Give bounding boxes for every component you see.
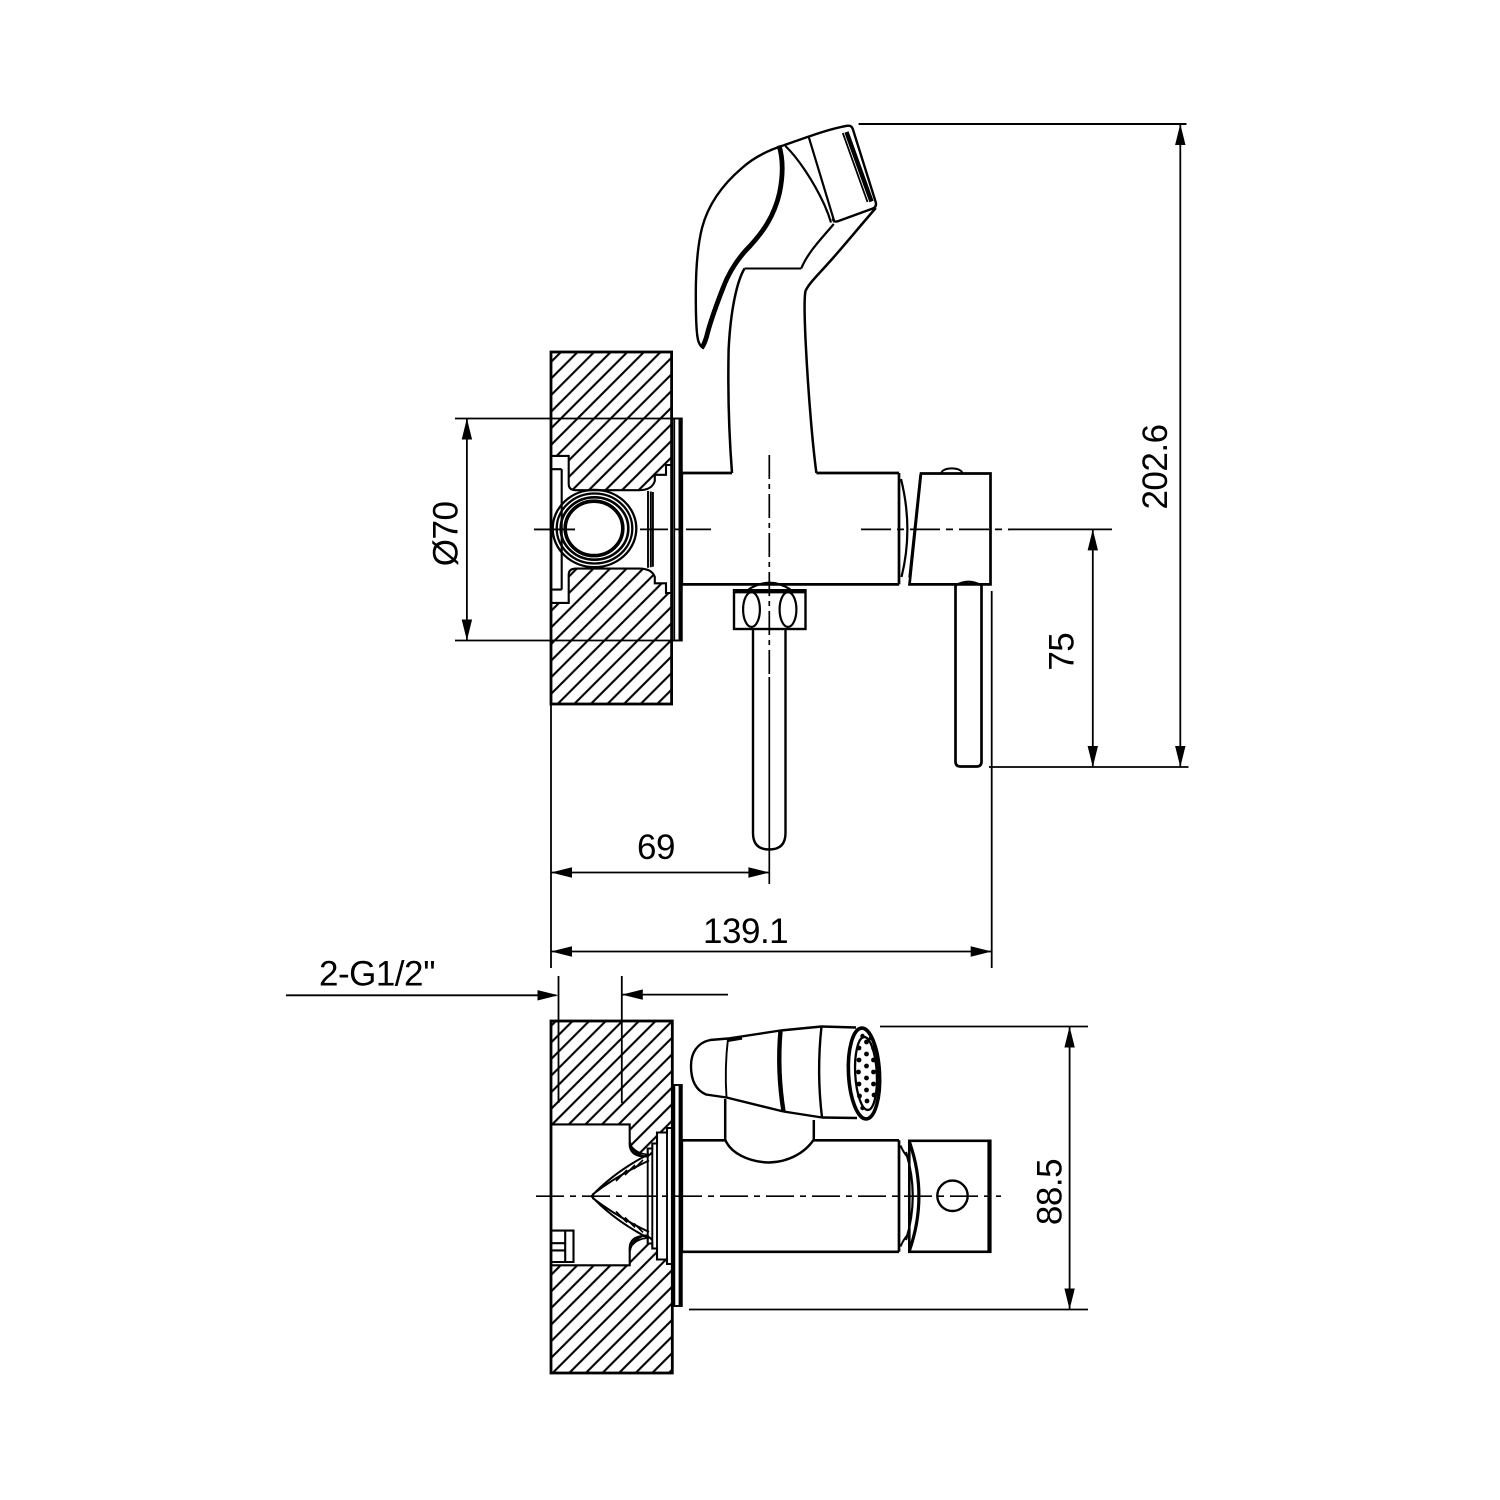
svg-text:69: 69 [637, 828, 675, 867]
svg-text:75: 75 [1042, 633, 1081, 671]
svg-text:139.1: 139.1 [703, 912, 788, 951]
svg-text:202.6: 202.6 [1136, 424, 1175, 509]
svg-text:88.5: 88.5 [1031, 1159, 1070, 1225]
svg-text:2-G1/2'': 2-G1/2'' [319, 954, 435, 993]
svg-text:Ø70: Ø70 [426, 502, 465, 567]
